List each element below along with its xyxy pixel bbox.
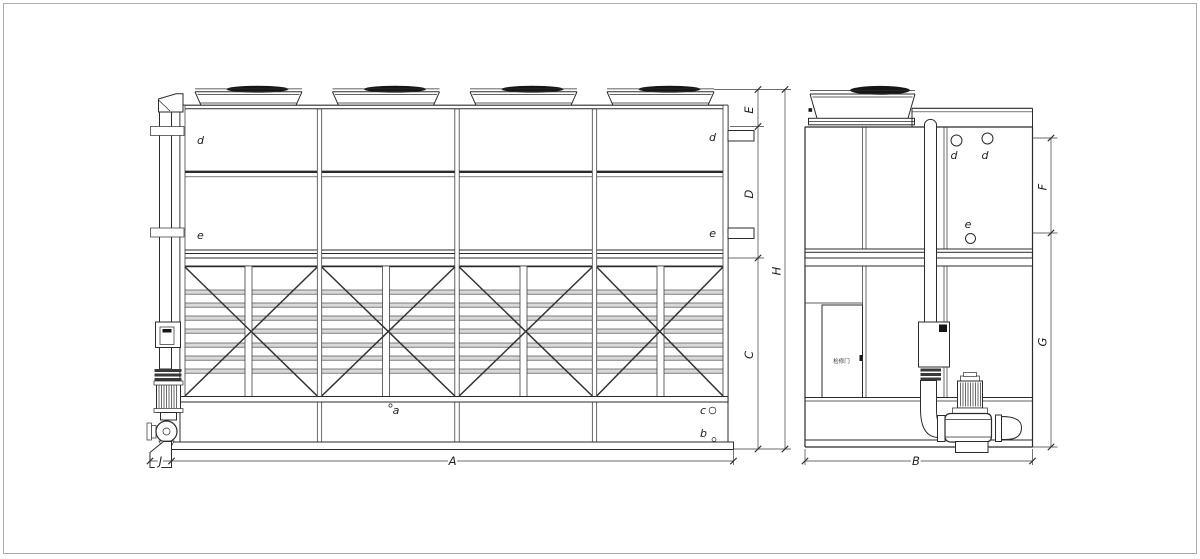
- nozzle-d2-side: [982, 133, 993, 144]
- dim-label-D: D: [742, 189, 756, 198]
- part-label-c: c: [700, 404, 706, 417]
- front-view: d e d e a c b: [147, 86, 754, 468]
- part-label-a: a: [393, 404, 400, 417]
- side-view: 检修门 d d e: [805, 86, 1033, 453]
- pump-front: [147, 369, 183, 468]
- dim-label-A: A: [448, 454, 457, 468]
- basin-front: [180, 402, 728, 443]
- part-label-d-front-right: d: [709, 131, 717, 144]
- access-door-label: 检修门: [833, 357, 850, 365]
- casing-side: 检修门 d d e: [805, 127, 1033, 447]
- door-latch-mark: [860, 355, 863, 361]
- part-label-e-front-right: e: [709, 227, 716, 240]
- fan-cowls-front: [195, 86, 714, 106]
- dim-label-E: E: [742, 106, 756, 114]
- nozzle-stubs-front: [728, 131, 754, 239]
- dim-label-C: C: [742, 351, 756, 359]
- standpipe-assembly-front: [151, 94, 185, 369]
- nozzle-e-side: [966, 234, 976, 244]
- part-label-e-front-left: e: [197, 229, 204, 242]
- part-label-d-side-2: d: [982, 149, 990, 162]
- dim-label-G: G: [1036, 337, 1050, 346]
- dim-label-B: B: [912, 454, 920, 468]
- dim-label-H: H: [770, 266, 784, 275]
- access-door: [822, 305, 863, 398]
- drawing-canvas: d e d e a c b: [0, 0, 1200, 559]
- part-label-d-front-left: d: [197, 134, 205, 147]
- part-label-b: b: [700, 427, 707, 440]
- part-label-e-side: e: [965, 218, 972, 231]
- part-label-d-side-1: d: [951, 149, 959, 162]
- base-channel-front: [172, 442, 734, 450]
- dim-label-F: F: [1036, 183, 1050, 190]
- nozzle-d1-side: [951, 135, 962, 146]
- deck-fitting-mark: [809, 108, 813, 112]
- fan-deck-front: [180, 105, 728, 109]
- fan-cowl-side: [809, 86, 916, 125]
- riser-pipe-side: [919, 119, 950, 437]
- pump-pedestal-side: [956, 442, 989, 453]
